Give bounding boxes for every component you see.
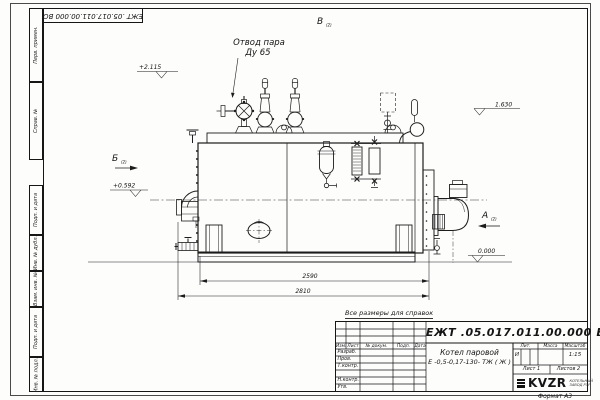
level-right-text: 1.630 xyxy=(495,102,512,109)
burner xyxy=(433,181,469,255)
callout-line2: Ду 65 xyxy=(244,48,270,58)
safety-valve-2 xyxy=(286,79,304,134)
format-label: Формат А3 xyxy=(520,393,590,400)
level-zero-text: 0.000 xyxy=(478,248,495,255)
tb-sheets-label: Листов xyxy=(557,366,576,372)
level-mark-top xyxy=(137,72,178,79)
tb-logo: KVZR КОТЕЛЬНЫЙ ЗАВОД РЭР xyxy=(517,377,593,389)
blowdown-elbow xyxy=(177,191,199,221)
callout-leader xyxy=(231,58,238,98)
tb-row-nkontr: Н.контр. xyxy=(338,379,359,384)
tb-sheet-value: 1 xyxy=(537,366,540,372)
tb-col-dokum: № докум. xyxy=(360,345,393,349)
view-arrow-a xyxy=(478,224,500,229)
tb-col-podp: Подп. xyxy=(393,345,414,349)
front-door xyxy=(423,170,434,250)
view-v-label: В xyxy=(317,17,323,27)
tb-sheet: Лист 1 xyxy=(513,367,550,372)
tb-row-razrab: Разраб. xyxy=(338,351,357,356)
tb-mass-label: Масса xyxy=(538,345,563,349)
lifting-lug-left xyxy=(276,125,292,133)
tb-lit-value: И xyxy=(513,353,521,359)
kvzr-caption-2: ЗАВОД РЭР xyxy=(570,383,591,387)
tb-col-data: Дата xyxy=(414,345,426,349)
separator-vessel xyxy=(318,142,337,188)
tb-col-izm: Изм. xyxy=(336,345,346,349)
tb-product-name-2: Е -0,5-0,17-130- ТЖ ( Ж ) xyxy=(426,359,513,365)
kvzr-logo-icon xyxy=(517,379,525,388)
tb-sheet-label: Лист xyxy=(523,366,536,372)
level-mark-zero xyxy=(468,256,505,263)
dim-inner-text: 2590 xyxy=(302,273,317,280)
reference-note: Все размеры для справок xyxy=(345,309,433,319)
tb-scale-label: Масштаб xyxy=(563,345,587,349)
boiler-shell xyxy=(198,133,423,253)
level-mark-right xyxy=(474,109,520,116)
tb-lit-label: Лит. xyxy=(513,345,538,349)
tb-col-list: Лист xyxy=(346,345,360,349)
level-top-text: +2.115 xyxy=(139,64,161,71)
drawing-sheet: Перв. примен. Справ. № Подп. и дата Инв.… xyxy=(0,0,600,400)
steam-outlet-valve xyxy=(217,96,255,133)
view-b-label: Б xyxy=(112,154,118,164)
callout-line1: Отвод пара xyxy=(233,38,285,48)
tb-scale-value: 1:15 xyxy=(563,353,587,359)
tb-sheets: Листов 2 xyxy=(550,367,587,372)
view-v-index: (2) xyxy=(326,23,332,28)
title-block: Изм. Лист № докум. Подп. Дата Разраб. Пр… xyxy=(335,321,588,392)
support-frame xyxy=(198,225,415,262)
level-mark-mid xyxy=(110,190,148,197)
tb-sheets-value: 2 xyxy=(577,366,580,372)
kvzr-logo-caption: КОТЕЛЬНЫЙ ЗАВОД РЭР xyxy=(570,379,593,387)
gauge-valve-handles xyxy=(355,140,378,184)
view-arrow-b xyxy=(115,166,138,171)
tb-row-utv: Утв. xyxy=(338,386,348,391)
dim-outer-text: 2810 xyxy=(295,288,310,295)
view-a-label: А xyxy=(481,211,488,221)
tb-row-tkontr: Т.контр. xyxy=(338,365,359,370)
view-b-index: (2) xyxy=(121,160,127,165)
tb-row-prov: Пров. xyxy=(338,358,352,363)
level-mid-text: +0.592 xyxy=(113,183,135,190)
water-level-gauge xyxy=(351,136,381,188)
tb-product-name-1: Котел паровой xyxy=(426,349,513,357)
left-top-valve xyxy=(187,130,199,143)
kvzr-logo-text: KVZR xyxy=(528,377,567,389)
safety-valve-1 xyxy=(256,79,274,134)
view-a-index: (2) xyxy=(491,217,497,222)
tb-doc-number: ЕЖТ .05.017.011.00.000 ВО xyxy=(426,327,587,338)
